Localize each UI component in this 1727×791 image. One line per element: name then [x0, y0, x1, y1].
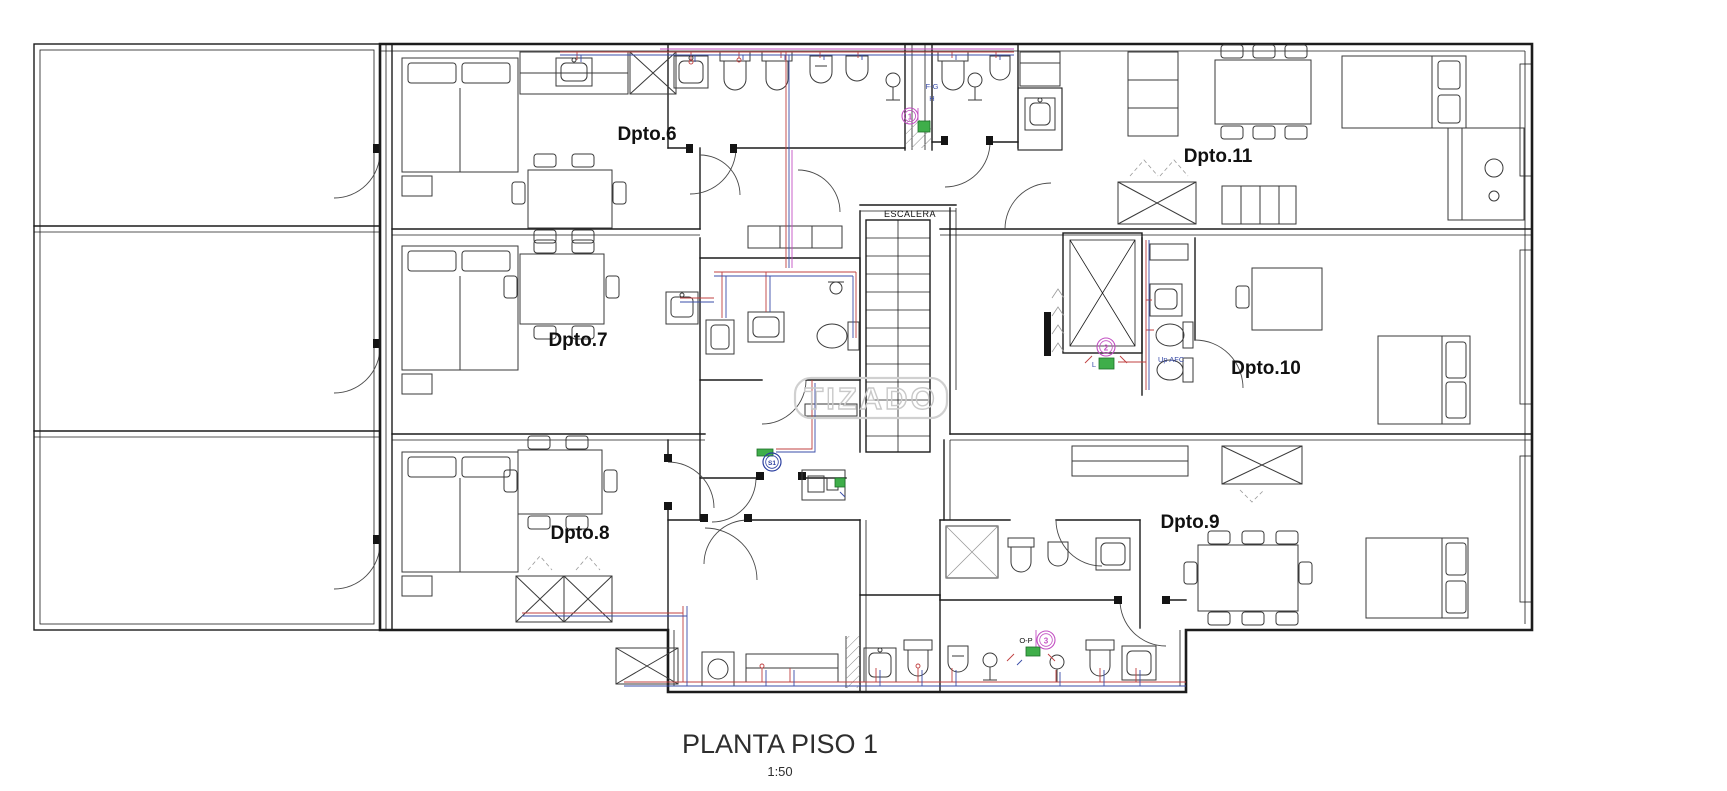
elevator: [1044, 233, 1142, 356]
kitchen-sink-icon: [666, 292, 698, 324]
dpto10-furniture: [1150, 244, 1470, 424]
svg-text:S1: S1: [768, 460, 776, 467]
bed-icon: [402, 58, 518, 196]
kitchen-counter-icon: [520, 52, 628, 94]
desk-icon: [1236, 268, 1322, 330]
bidet-icon: [810, 56, 832, 83]
svg-text:3: 3: [1044, 637, 1049, 646]
floor-plan-drawing: ESCALERA: [0, 0, 1727, 791]
kitchen-counter-icon: [1020, 52, 1060, 86]
sink-icon: [674, 56, 708, 88]
room-label-dpto10: Dpto.10: [1231, 358, 1301, 379]
shower-icon: [1050, 655, 1064, 682]
wardrobe-icon: [1128, 52, 1178, 136]
gas-meter-icon: [1026, 647, 1040, 656]
plumbing-hot-water-lines: [522, 52, 1186, 682]
watermark: TIZADO: [795, 378, 947, 418]
bed-icon: [402, 246, 518, 394]
room-label-dpto8: Dpto.8: [550, 523, 609, 544]
svg-text:2: 2: [1104, 344, 1109, 353]
watermark-text: TIZADO: [804, 381, 937, 416]
bed-icon: [1366, 538, 1468, 618]
door-arcs: [664, 136, 1243, 646]
riser-marker-3: 3: [1037, 631, 1055, 649]
room-label-dpto6: Dpto.6: [617, 124, 676, 145]
cabinet-icon: [1222, 186, 1296, 224]
kitchen-counter-icon: [1072, 446, 1188, 476]
room-labels: Dpto.6 Dpto.7 Dpto.8 Dpto.9 Dpto.10 Dpto…: [548, 124, 1300, 544]
plumbing-cold-water-lines: [522, 55, 1186, 686]
svg-text:1: 1: [908, 113, 913, 122]
title-block: PLANTA PISO 1 1:50: [682, 729, 878, 779]
afc-note: Up AFC: [1158, 355, 1185, 364]
dpto7-bathroom: [700, 226, 860, 380]
sink-icon: [1122, 646, 1156, 680]
room-label-dpto7: Dpto.7: [548, 330, 607, 351]
duct-label-fg: F-G: [926, 82, 939, 91]
stove-icon: [1222, 446, 1302, 502]
sink-icon: [748, 312, 784, 342]
dining-table-icon: [504, 240, 619, 339]
left-annex-patios: [34, 44, 381, 630]
meter-label-l: L: [1092, 360, 1096, 369]
gas-meter-icon: [1099, 358, 1114, 369]
top-bathrooms-fixtures: [674, 52, 1055, 130]
shower-icon: [983, 653, 997, 680]
elevator-arrows-icon: [1052, 289, 1064, 352]
plan-scale: 1:50: [767, 764, 792, 779]
kitchen-counter-icon: [1448, 128, 1524, 220]
interior-walls: [392, 44, 1532, 692]
bidet-icon: [1048, 542, 1068, 566]
duct-label-h: H: [929, 94, 934, 103]
shelf-icon: [1150, 244, 1188, 260]
kitchen-counter-icon: [746, 654, 838, 682]
toilet-icon: [1156, 322, 1193, 348]
toilet-icon: [762, 52, 792, 90]
shower-icon: [968, 73, 982, 100]
floor-plan-screenshot: ESCALERA: [0, 0, 1727, 791]
shower-icon: [886, 73, 900, 100]
shower-tray-icon: [946, 526, 998, 578]
dining-table-icon: [504, 436, 617, 529]
stairs-label: ESCALERA: [884, 209, 936, 219]
duct-label-op: O-P: [1019, 636, 1032, 645]
sanitary-marker-s1: S1: [763, 453, 781, 471]
sink-icon: [1025, 98, 1055, 130]
gas-meter-icon: [757, 449, 773, 456]
toilet-icon: [938, 52, 968, 90]
bidet-icon: [846, 56, 868, 81]
bottom-bathrooms-fixtures: [616, 470, 1156, 686]
dpto7-furniture: [402, 240, 698, 394]
toilet-icon: [1008, 538, 1034, 572]
dining-table-icon: [1215, 45, 1311, 139]
room-label-dpto9: Dpto.9: [1160, 512, 1219, 533]
sink-icon: [1150, 284, 1182, 316]
gas-meter-icon: [835, 478, 845, 487]
dpto9-furniture: [946, 446, 1468, 625]
bed-icon: [1342, 56, 1466, 128]
toilet-paper-icon: [828, 282, 844, 294]
washer-icon: [702, 652, 734, 686]
bidet-icon: [948, 646, 968, 672]
dpto11-furniture: [1020, 45, 1524, 224]
elevator-door-jamb: [1044, 312, 1051, 356]
dpto6-furniture: [402, 52, 676, 243]
bed-icon: [1378, 336, 1470, 424]
riser-marker-1: 1: [902, 108, 918, 124]
dining-table-icon: [1184, 531, 1312, 625]
plan-title: PLANTA PISO 1: [682, 729, 878, 759]
stove-icon: [1118, 160, 1196, 224]
sink-icon: [1096, 538, 1130, 570]
riser-marker-2: 2: [1097, 338, 1115, 356]
sink-icon: [706, 320, 734, 354]
room-label-dpto11: Dpto.11: [1184, 146, 1253, 167]
stove-icon: [516, 556, 612, 622]
toilet-icon: [720, 52, 750, 90]
bed-icon: [402, 452, 518, 596]
stove-icon: [630, 52, 676, 94]
gas-meter-icon: [918, 121, 930, 132]
